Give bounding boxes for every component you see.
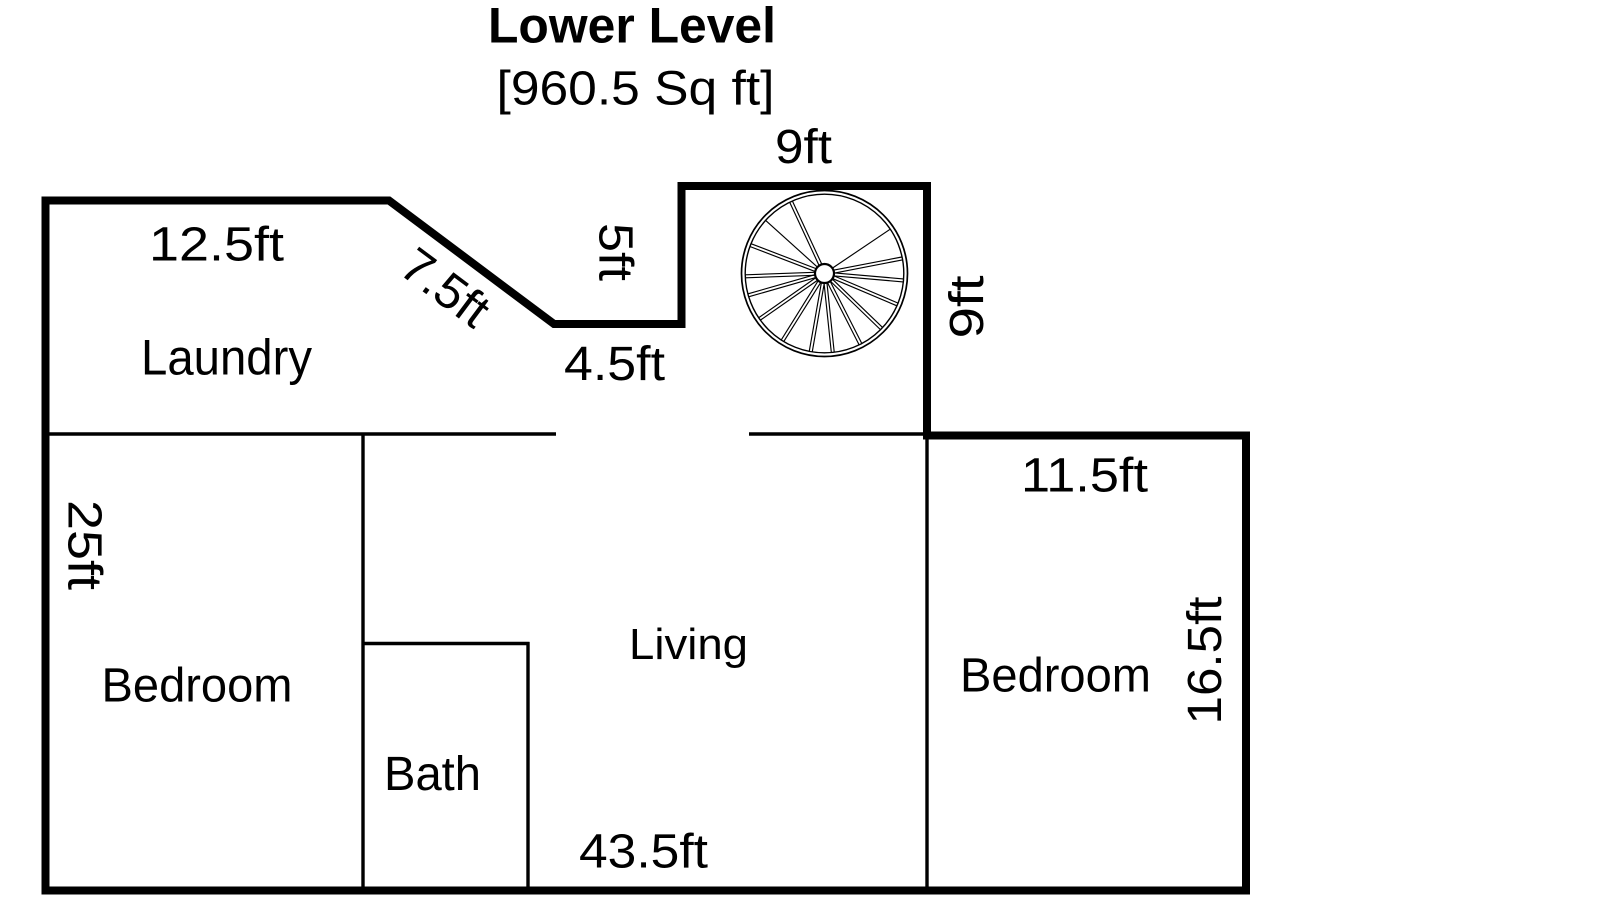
svg-text:Living: Living	[629, 620, 748, 669]
svg-text:5ft: 5ft	[589, 223, 642, 281]
svg-text:11.5ft: 11.5ft	[1021, 450, 1148, 503]
svg-text:[960.5 Sq ft]: [960.5 Sq ft]	[497, 63, 775, 116]
svg-text:Bath: Bath	[384, 748, 481, 801]
svg-text:Bedroom: Bedroom	[102, 660, 293, 713]
svg-text:12.5ft: 12.5ft	[149, 219, 284, 272]
svg-text:9ft: 9ft	[941, 276, 994, 339]
svg-text:4.5ft: 4.5ft	[564, 338, 665, 391]
svg-text:9ft: 9ft	[775, 121, 832, 174]
svg-text:Lower Level: Lower Level	[488, 0, 776, 54]
svg-text:25ft: 25ft	[58, 500, 111, 590]
svg-text:16.5ft: 16.5ft	[1179, 597, 1232, 725]
svg-text:43.5ft: 43.5ft	[579, 826, 708, 879]
svg-text:Bedroom: Bedroom	[960, 650, 1151, 703]
svg-text:Laundry: Laundry	[141, 330, 312, 386]
